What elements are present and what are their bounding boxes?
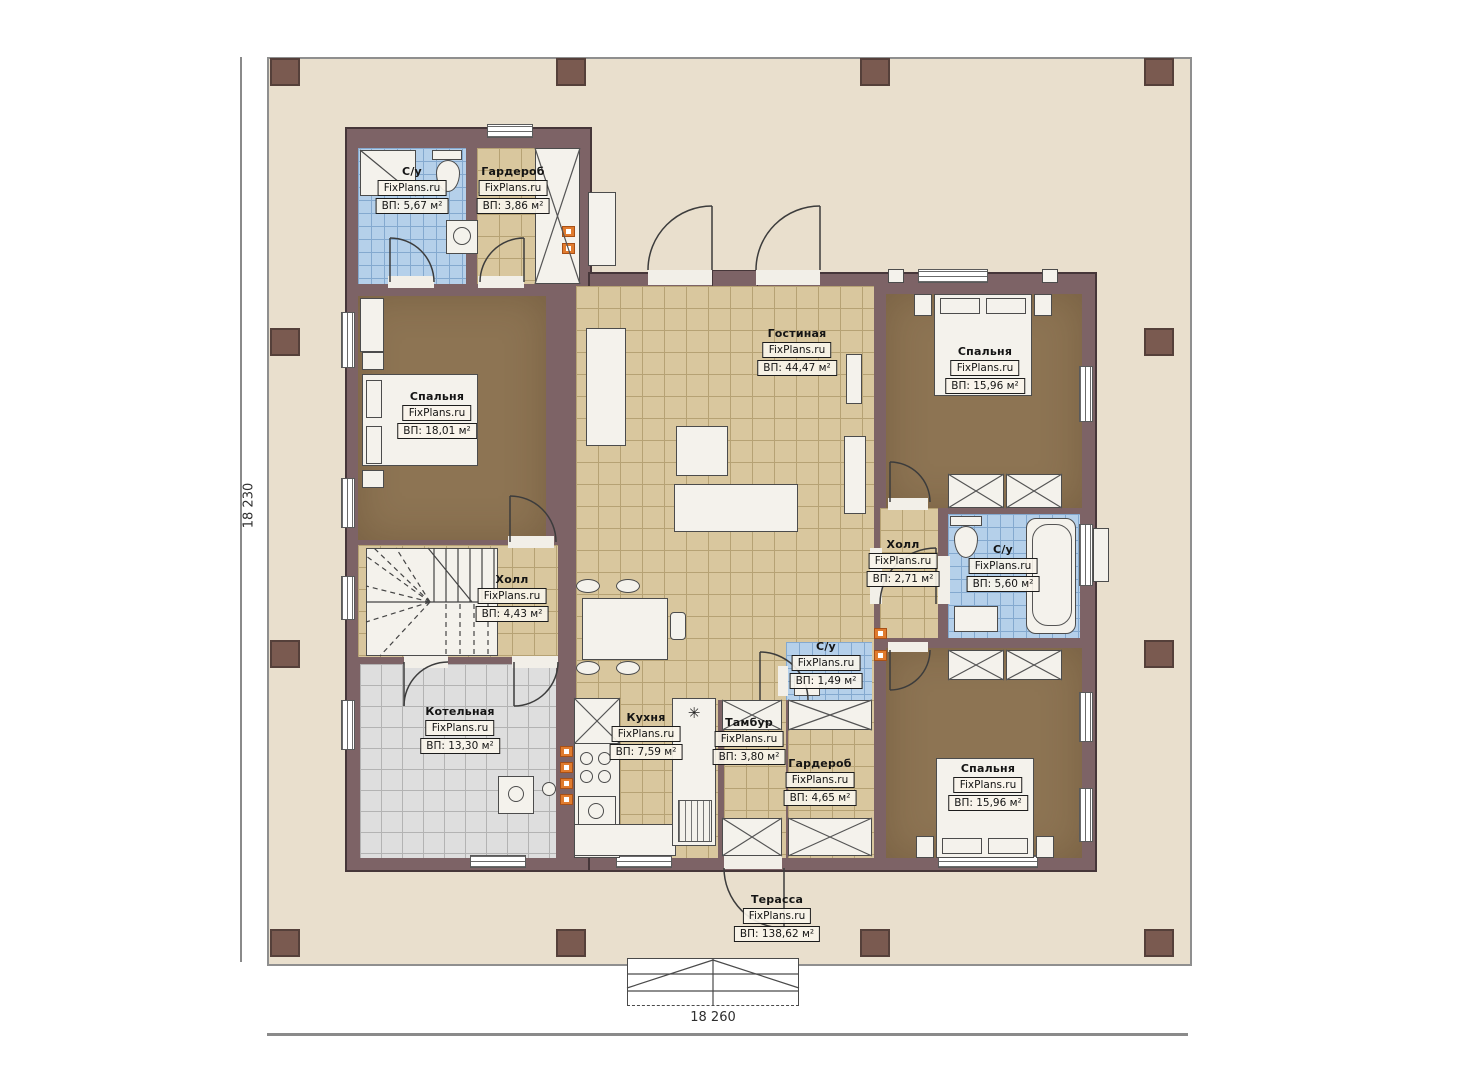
room-label-bedroom-topright: Спальня FixPlans.ru ВП: 15,96 м² [945, 345, 1025, 394]
room-label-hall-right: Холл FixPlans.ru ВП: 2,71 м² [867, 538, 940, 587]
brand-badge: FixPlans.ru [951, 360, 1020, 376]
room-label-bathroom-topleft: С/у FixPlans.ru ВП: 5,67 м² [376, 165, 449, 214]
closet [788, 700, 872, 730]
brand-badge: FixPlans.ru [969, 558, 1038, 574]
fridge-hatch [678, 800, 712, 842]
brand-badge: FixPlans.ru [378, 180, 447, 196]
room-label-bathroom-right: С/у FixPlans.ru ВП: 5,60 м² [967, 543, 1040, 592]
window [341, 576, 355, 620]
chair [670, 612, 686, 640]
closet [1006, 474, 1062, 508]
entrance-steps [627, 958, 799, 1006]
pillow [986, 298, 1026, 314]
window [1079, 692, 1093, 742]
door-opening [388, 276, 434, 288]
dining-table [582, 598, 668, 660]
room-label-boiler: Котельная FixPlans.ru ВП: 13,30 м² [420, 705, 500, 754]
nightstand [916, 836, 934, 858]
tv-unit [586, 328, 626, 446]
column [1144, 640, 1174, 668]
vent [874, 650, 887, 661]
column [860, 929, 890, 957]
area-badge: ВП: 5,60 м² [967, 576, 1040, 592]
brand-badge: FixPlans.ru [786, 772, 855, 788]
stove-burner [580, 752, 593, 765]
wardrobe-unit [360, 298, 384, 352]
sofa [674, 484, 798, 532]
floor-plan: ✳ [0, 0, 1473, 1080]
brand-badge: FixPlans.ru [954, 777, 1023, 793]
column [1144, 929, 1174, 957]
closet [1006, 650, 1062, 680]
window-sill [1093, 528, 1109, 582]
column [1144, 328, 1174, 356]
area-badge: ВП: 15,96 м² [945, 378, 1025, 394]
vent [560, 746, 573, 757]
room-label-wardrobe-bottom: Гардероб FixPlans.ru ВП: 4,65 м² [784, 757, 857, 806]
area-badge: ВП: 4,65 м² [784, 790, 857, 806]
kitchen-counter-bottom [574, 824, 676, 856]
nightstand [914, 294, 932, 316]
room-label-kitchen: Кухня FixPlans.ru ВП: 7,59 м² [610, 711, 683, 760]
boiler-pipe [542, 782, 556, 796]
fireplace [844, 436, 866, 514]
brand-badge: FixPlans.ru [763, 342, 832, 358]
room-label-living: Гостиная FixPlans.ru ВП: 44,47 м² [757, 327, 837, 376]
stove-burner [598, 770, 611, 783]
vent [562, 243, 575, 254]
coffee-table [676, 426, 728, 476]
vent [562, 226, 575, 237]
chair [576, 661, 600, 675]
vent [560, 794, 573, 805]
area-badge: ВП: 2,71 м² [867, 571, 940, 587]
chair [616, 579, 640, 593]
area-badge: ВП: 44,47 м² [757, 360, 837, 376]
brand-badge: FixPlans.ru [478, 588, 547, 604]
door-opening [938, 556, 950, 604]
bathroom-sink [954, 606, 998, 632]
vent [560, 762, 573, 773]
dimension-label-bottom: 18 260 [658, 1010, 768, 1025]
door-opening [724, 855, 782, 869]
vent [874, 628, 887, 639]
room-label-bedroom-bottomright: Спальня FixPlans.ru ВП: 15,96 м² [948, 762, 1028, 811]
column [556, 929, 586, 957]
brand-badge: FixPlans.ru [869, 553, 938, 569]
stove-burner [580, 770, 593, 783]
nightstand [1034, 294, 1052, 316]
room-label-bedroom-left: Спальня FixPlans.ru ВП: 18,01 м² [397, 390, 477, 439]
column [270, 929, 300, 957]
room-label-wc-small: С/у FixPlans.ru ВП: 1,49 м² [790, 640, 863, 689]
exterior-cabinet [588, 192, 616, 266]
room-label-wardrobe-topleft: Гардероб FixPlans.ru ВП: 3,86 м² [477, 165, 550, 214]
window [341, 312, 355, 368]
vent [560, 778, 573, 789]
window [341, 700, 355, 750]
window-corner [888, 269, 904, 283]
door-opening [888, 642, 928, 652]
room-label-terrace: Терасса FixPlans.ru ВП: 138,62 м² [734, 893, 820, 942]
pillow [988, 838, 1028, 854]
nightstand [362, 352, 384, 370]
window [1079, 788, 1093, 842]
boiler-dial [508, 786, 524, 802]
window [1079, 524, 1093, 586]
area-badge: ВП: 4,43 м² [476, 606, 549, 622]
closet [722, 818, 782, 856]
door-opening [512, 656, 558, 668]
dimension-label-left: 18 230 [242, 471, 257, 541]
door-opening [756, 270, 820, 285]
area-badge: ВП: 5,67 м² [376, 198, 449, 214]
column [270, 58, 300, 86]
brand-badge: FixPlans.ru [792, 655, 861, 671]
window [918, 269, 988, 283]
toilet-tank [950, 516, 982, 526]
brand-badge: FixPlans.ru [403, 405, 472, 421]
closet [948, 650, 1004, 680]
door-opening [508, 536, 554, 548]
area-badge: ВП: 7,59 м² [610, 744, 683, 760]
room-label-tambour: Тамбур FixPlans.ru ВП: 3,80 м² [713, 716, 786, 765]
door-opening [404, 656, 448, 668]
pillow [366, 380, 382, 418]
door-opening [648, 270, 712, 285]
closet [948, 474, 1004, 508]
column [1144, 58, 1174, 86]
brand-badge: FixPlans.ru [612, 726, 681, 742]
brand-badge: FixPlans.ru [479, 180, 548, 196]
door-opening [888, 498, 928, 510]
toilet-tank [432, 150, 462, 160]
window [1079, 366, 1093, 422]
area-badge: ВП: 3,86 м² [477, 198, 550, 214]
sink-bowl [588, 803, 604, 819]
console-unit [846, 354, 862, 404]
area-badge: ВП: 1,49 м² [790, 673, 863, 689]
pillow [942, 838, 982, 854]
closet [788, 818, 872, 856]
window-corner [1042, 269, 1058, 283]
area-badge: ВП: 15,96 м² [948, 795, 1028, 811]
window [470, 855, 526, 868]
chair [576, 579, 600, 593]
pillow [366, 426, 382, 464]
chair [616, 661, 640, 675]
area-badge: ВП: 13,30 м² [420, 738, 500, 754]
door-opening [778, 666, 788, 696]
dimension-line-bottom [267, 1033, 1188, 1036]
area-badge: ВП: 138,62 м² [734, 926, 820, 942]
column [270, 640, 300, 668]
brand-badge: FixPlans.ru [426, 720, 495, 736]
floor-boiler-room [360, 664, 556, 858]
column [270, 328, 300, 356]
window [616, 855, 672, 868]
room-label-hall-stairs: Холл FixPlans.ru ВП: 4,43 м² [476, 573, 549, 622]
pillow [940, 298, 980, 314]
window [487, 124, 533, 138]
window [341, 478, 355, 528]
washer-drum [453, 227, 471, 245]
nightstand [1036, 836, 1054, 858]
nightstand [362, 470, 384, 488]
area-badge: ВП: 3,80 м² [713, 749, 786, 765]
column [860, 58, 890, 86]
door-opening [478, 276, 524, 288]
brand-badge: FixPlans.ru [743, 908, 812, 924]
area-badge: ВП: 18,01 м² [397, 423, 477, 439]
column [556, 58, 586, 86]
brand-badge: FixPlans.ru [715, 731, 784, 747]
